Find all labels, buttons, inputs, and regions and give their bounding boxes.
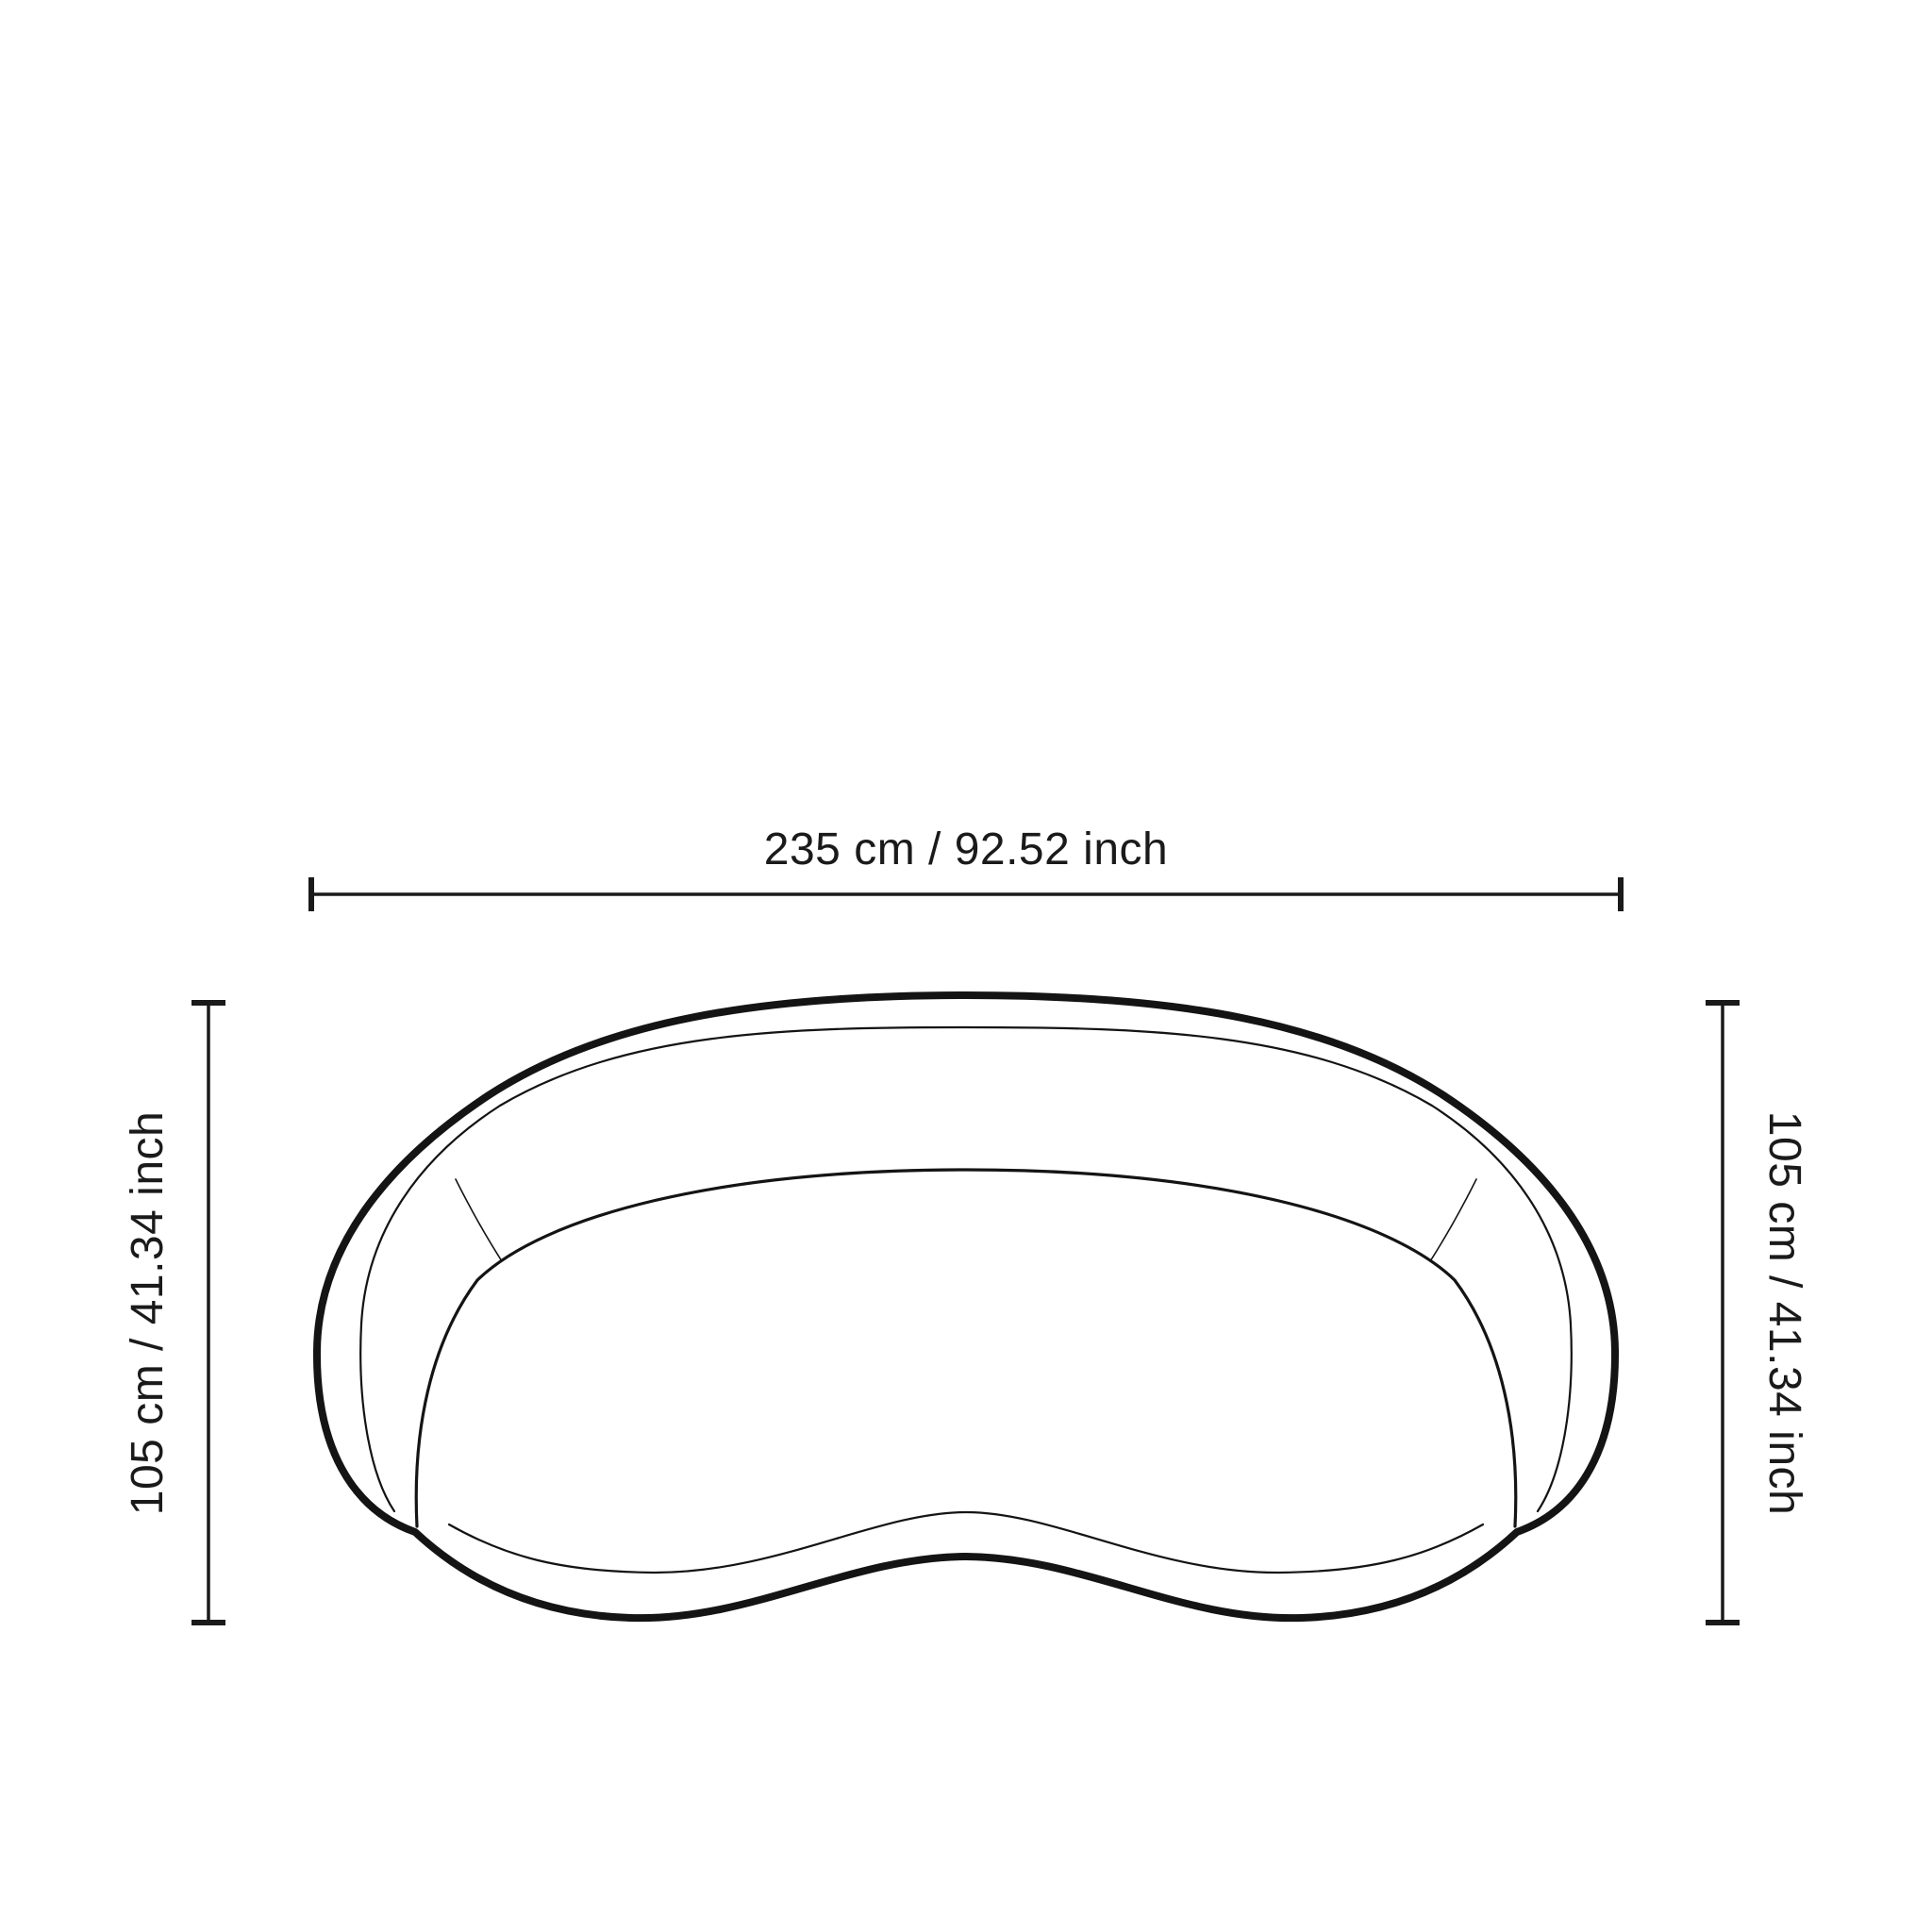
width-dimension-label: 235 cm / 92.52 inch [764, 824, 1168, 874]
width-dimension: 235 cm / 92.52 inch [311, 824, 1621, 911]
depth-dimension-left-label: 105 cm / 41.34 inch [123, 1111, 173, 1515]
sofa-backrest-inner-line [360, 1027, 1572, 1511]
dimension-diagram-page: 235 cm / 92.52 inch 105 cm / 41.34 inch … [0, 0, 1932, 1932]
sofa-outer-outline [317, 995, 1615, 1618]
sofa-top-view [317, 995, 1615, 1618]
sofa-dimension-diagram: 235 cm / 92.52 inch 105 cm / 41.34 inch … [0, 0, 1932, 1932]
sofa-left-seam-line [456, 1179, 502, 1261]
sofa-right-seam-line [1430, 1179, 1476, 1261]
depth-dimension-right: 105 cm / 41.34 inch [1706, 1003, 1809, 1623]
depth-dimension-right-label: 105 cm / 41.34 inch [1759, 1111, 1809, 1515]
depth-dimension-left: 105 cm / 41.34 inch [123, 1003, 225, 1623]
sofa-front-inner-line [449, 1512, 1483, 1573]
sofa-seat-inner-line [416, 1170, 1516, 1526]
